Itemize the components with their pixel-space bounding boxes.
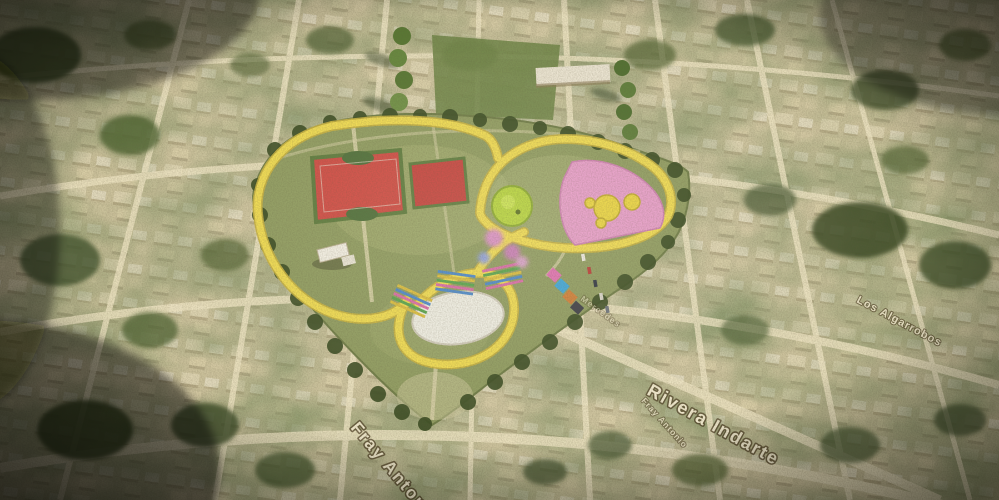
render-canvas: Fray Antonio C Rivera Indarte Los Algarr… [0,0,999,500]
photo-grading [0,0,999,500]
aerial-park-render: Fray Antonio C Rivera Indarte Los Algarr… [0,0,999,500]
